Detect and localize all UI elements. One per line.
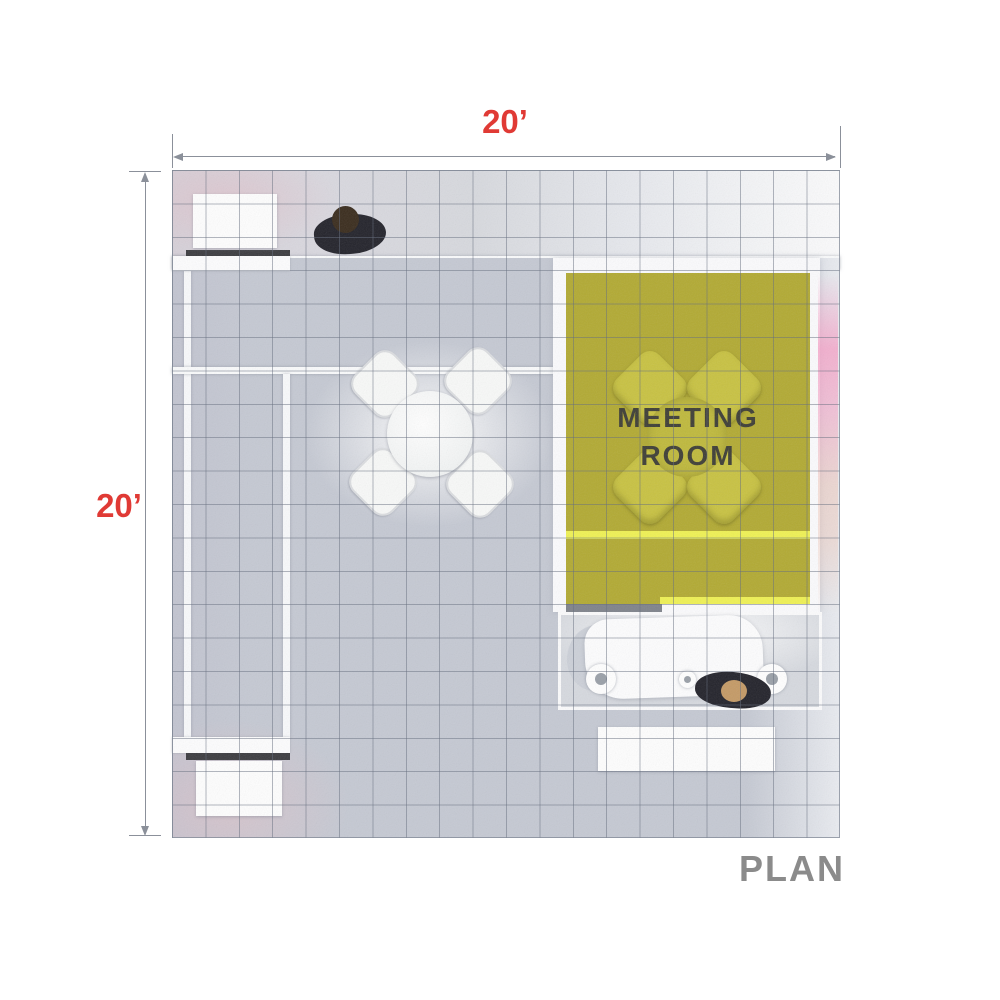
extension-line-top-right <box>840 126 841 168</box>
reception-table-bottom-left <box>196 761 282 816</box>
dimension-line-top <box>177 156 835 157</box>
person-seated-desk <box>695 670 771 710</box>
reception-counter-bottom-base <box>172 737 290 753</box>
arrowhead-right-icon <box>826 153 836 161</box>
stool-small-center-seat <box>684 676 691 683</box>
stool-left-seat <box>595 673 607 685</box>
plan-caption: PLAN <box>690 848 845 890</box>
reception-counter-top-edge <box>186 250 290 256</box>
person-seated-desk-head <box>721 680 747 702</box>
reception-counter-top-base <box>172 256 290 271</box>
inner-wall-line <box>283 374 290 737</box>
arrowhead-down-icon <box>141 826 149 836</box>
left-wall-line <box>184 270 191 737</box>
arrowhead-left-icon <box>173 153 183 161</box>
stool-small-center <box>679 671 696 688</box>
extension-line-top-left <box>172 134 173 168</box>
meeting-room: MEETING ROOM <box>566 273 810 604</box>
booth-floor: MEETING ROOM <box>172 170 840 838</box>
round-conference-table <box>387 391 473 477</box>
reception-counter-bottom-edge <box>186 753 290 760</box>
meeting-room-label-line1: MEETING <box>566 399 810 437</box>
meeting-room-accent-stripe <box>566 531 810 539</box>
reception-table-top-left <box>193 194 277 248</box>
stool-left <box>586 664 616 694</box>
arrowhead-up-icon <box>141 172 149 182</box>
floor-plan-page: MEETING ROOM <box>0 0 1000 1000</box>
meeting-room-label-line2: ROOM <box>566 437 810 475</box>
person-seated-top <box>314 206 386 254</box>
pink-wall-glow <box>818 274 838 614</box>
dimension-label-left: 20’ <box>83 487 155 525</box>
person-seated-top-head <box>332 206 359 233</box>
dimension-label-top: 20’ <box>455 103 555 141</box>
meeting-room-bottom-stripe <box>660 597 810 604</box>
display-table-bottom <box>598 727 775 771</box>
meeting-room-label: MEETING ROOM <box>566 399 810 475</box>
